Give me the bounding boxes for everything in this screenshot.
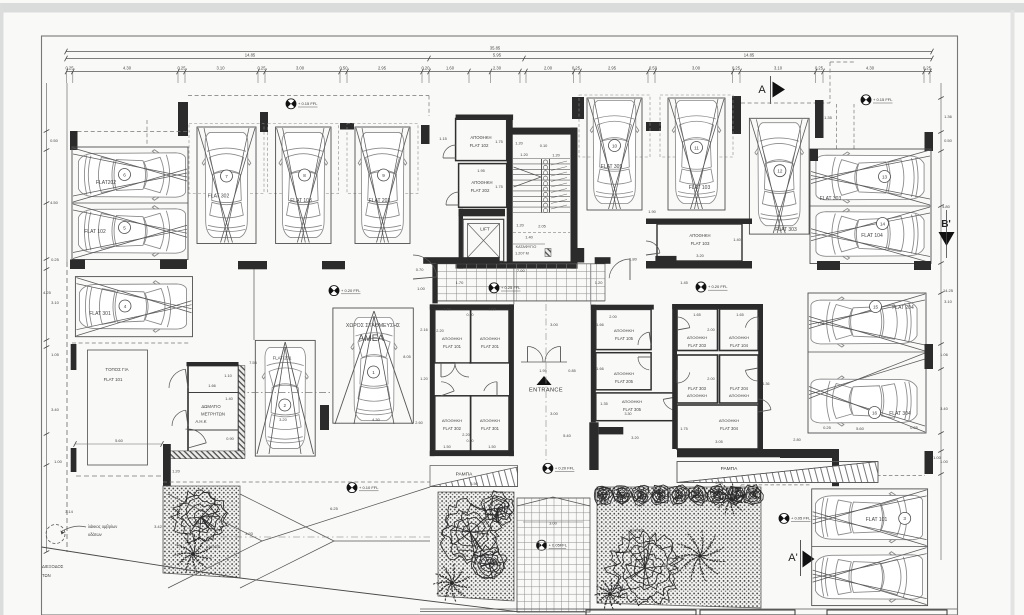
svg-text:ΑΠOΘΗΚΗ: ΑΠOΘΗΚΗ (442, 336, 462, 341)
svg-text:0.25: 0.25 (823, 425, 832, 430)
svg-text:14.85: 14.85 (744, 53, 755, 58)
svg-text:ΑΜΕΑ: ΑΜΕΑ (358, 333, 384, 343)
svg-text:1.36: 1.36 (763, 382, 770, 386)
svg-text:ΔΙΕΞOΔOΣ: ΔΙΕΞOΔOΣ (42, 564, 64, 569)
svg-text:14.25: 14.25 (943, 288, 954, 293)
svg-text:1.20: 1.20 (520, 152, 528, 157)
svg-text:ΑΠOΘΗΚΗ: ΑΠOΘΗΚΗ (442, 418, 462, 423)
svg-text:2.80: 2.80 (793, 438, 800, 442)
svg-text:ΡΑΜΠΑ: ΡΑΜΠΑ (721, 466, 739, 472)
svg-text:ΑΠOΘΗΚΗ: ΑΠOΘΗΚΗ (480, 336, 500, 341)
svg-text:0.50: 0.50 (340, 65, 349, 70)
svg-text:0.25: 0.25 (732, 65, 741, 70)
svg-text:ΑΠOΘΗΚΗ: ΑΠOΘΗΚΗ (614, 371, 634, 376)
svg-text:FLAT 303: FLAT 303 (820, 196, 842, 202)
svg-text:1.00: 1.00 (54, 459, 63, 464)
svg-text:1.60: 1.60 (446, 65, 455, 70)
svg-text:FLAT 305: FLAT 305 (601, 164, 623, 170)
svg-text:2.00: 2.00 (544, 65, 553, 70)
svg-text:2: 2 (284, 403, 287, 408)
svg-text:1.20: 1.20 (172, 469, 181, 474)
svg-text:ΑΠOΘΗΚΗ: ΑΠOΘΗΚΗ (614, 328, 634, 333)
svg-text:12: 12 (777, 169, 783, 174)
svg-text:0.25: 0.25 (815, 65, 824, 70)
svg-text:1.40: 1.40 (733, 237, 741, 242)
svg-text:1.40: 1.40 (525, 235, 533, 240)
svg-text:Α.Η.Κ: Α.Η.Κ (195, 419, 206, 424)
svg-text:ΑΠOΘΗΚΗ: ΑΠOΘΗΚΗ (729, 393, 749, 398)
svg-text:1.66: 1.66 (596, 367, 603, 371)
svg-text:1.36: 1.36 (944, 114, 953, 119)
svg-text:LIFT: LIFT (480, 227, 490, 232)
svg-text:+ 0.10 FFL: + 0.10 FFL (359, 485, 379, 490)
svg-text:ΑΠOΘΗΚΗ: ΑΠOΘΗΚΗ (471, 180, 492, 185)
svg-text:0.25: 0.25 (910, 425, 919, 430)
svg-text:ΑΠOΘΗΚΗ: ΑΠOΘΗΚΗ (719, 418, 739, 423)
svg-text:5.60: 5.60 (115, 438, 124, 443)
svg-text:2.05: 2.05 (538, 224, 546, 229)
svg-text:ΚΗΠOΣ: ΚΗΠOΣ (630, 528, 645, 533)
svg-text:ΑΠOΘΗΚΗ: ΑΠOΘΗΚΗ (480, 418, 500, 423)
svg-text:FLAT 101: FLAT 101 (866, 517, 888, 523)
svg-text:1.15: 1.15 (439, 136, 447, 141)
svg-text:2.95: 2.95 (608, 65, 617, 70)
svg-text:6: 6 (123, 172, 126, 177)
svg-text:1.35: 1.35 (600, 402, 607, 406)
svg-text:+ 0.25 FFL: + 0.25 FFL (501, 285, 521, 290)
svg-text:4.30: 4.30 (372, 417, 381, 422)
svg-text:υδάτων: υδάτων (88, 532, 102, 537)
svg-text:FLAT 304: FLAT 304 (889, 411, 911, 417)
svg-text:13: 13 (882, 174, 888, 179)
svg-text:14.85: 14.85 (245, 53, 256, 58)
svg-text:2.16: 2.16 (420, 328, 427, 332)
svg-text:FLAT 203: FLAT 203 (688, 343, 707, 348)
svg-text:7.55: 7.55 (817, 321, 826, 326)
svg-text:1.00: 1.00 (940, 459, 949, 464)
svg-text:+ 0.15 FFL: + 0.15 FFL (298, 101, 318, 106)
svg-text:1.95: 1.95 (539, 369, 546, 373)
svg-text:1.50: 1.50 (488, 307, 495, 311)
svg-text:4.50: 4.50 (50, 200, 59, 205)
svg-text:1.35: 1.35 (824, 115, 833, 120)
svg-text:λάκκος ομβρίων: λάκκος ομβρίων (88, 524, 117, 529)
svg-text:1.95: 1.95 (477, 168, 485, 173)
svg-text:3.10: 3.10 (51, 300, 60, 305)
svg-text:FLAT 202: FLAT 202 (471, 188, 490, 193)
svg-text:FLAT 203: FLAT 203 (369, 198, 391, 204)
svg-text:FLAT 304: FLAT 304 (720, 426, 739, 431)
svg-text:0.25: 0.25 (51, 257, 60, 262)
svg-text:FLAT 302: FLAT 302 (208, 194, 230, 200)
svg-text:1.10: 1.10 (224, 373, 232, 378)
svg-text:3.10: 3.10 (944, 299, 953, 304)
svg-text:3.42: 3.42 (154, 524, 163, 529)
svg-text:FLAT 103: FLAT 103 (691, 241, 710, 246)
svg-text:10: 10 (612, 143, 618, 148)
svg-text:7: 7 (225, 174, 228, 179)
svg-text:B': B' (941, 219, 951, 230)
svg-text:5.95: 5.95 (493, 53, 502, 58)
svg-text:1.207 M: 1.207 M (515, 252, 529, 256)
svg-text:FLAT 302: FLAT 302 (443, 426, 462, 431)
svg-text:2.20: 2.20 (436, 329, 443, 333)
svg-text:0.90: 0.90 (226, 436, 234, 441)
svg-text:+ 0.20 FFL: + 0.20 FFL (555, 466, 575, 471)
svg-text:FLAT 104: FLAT 104 (730, 343, 749, 348)
svg-text:1.60: 1.60 (443, 307, 450, 311)
svg-text:ΑΠOΘΗΚΗ: ΑΠOΘΗΚΗ (687, 393, 707, 398)
svg-text:0.20: 0.20 (422, 65, 431, 70)
svg-text:5.40: 5.40 (563, 433, 572, 438)
svg-text:7.55: 7.55 (249, 360, 258, 365)
svg-text:2.60: 2.60 (415, 421, 422, 425)
svg-text:4.30: 4.30 (123, 65, 132, 70)
svg-text:3.00: 3.00 (549, 521, 558, 526)
svg-text:1.06: 1.06 (940, 352, 949, 357)
svg-text:0.50: 0.50 (649, 65, 658, 70)
svg-text:2.20: 2.20 (462, 433, 469, 437)
svg-text:4.25: 4.25 (43, 290, 52, 295)
svg-text:A: A (758, 84, 766, 96)
svg-text:0.10: 0.10 (467, 439, 474, 443)
svg-text:ΑΠOΘΗΚΗ: ΑΠOΘΗΚΗ (470, 135, 491, 140)
svg-text:4.80: 4.80 (942, 204, 951, 209)
svg-text:1.50: 1.50 (443, 445, 450, 449)
svg-text:ΚΗΠOΣ: ΚΗΠOΣ (206, 544, 221, 549)
svg-text:FLAT 103: FLAT 103 (689, 185, 711, 191)
svg-text:0.25: 0.25 (572, 65, 581, 70)
svg-text:1.66: 1.66 (208, 383, 216, 388)
svg-text:1.75: 1.75 (495, 184, 503, 189)
svg-text:16: 16 (872, 410, 878, 415)
svg-text:+ 0.20 FFL: + 0.20 FFL (341, 288, 361, 293)
svg-text:4.30: 4.30 (866, 65, 875, 70)
svg-text:ΑΠOΘΗΚΗ: ΑΠOΘΗΚΗ (689, 233, 710, 238)
svg-text:A': A' (788, 552, 797, 564)
svg-text:FLAT 101: FLAT 101 (443, 344, 462, 349)
svg-text:1.40: 1.40 (225, 396, 233, 401)
svg-text:ΑΠOΘΗΚΗ: ΑΠOΘΗΚΗ (729, 335, 749, 340)
svg-text:3.00: 3.00 (550, 411, 559, 416)
svg-text:FLAT 101: FLAT 101 (104, 377, 123, 382)
svg-text:ΧΩΡOΣ ΣΤΑΘΜΕΥΣΗΣ: ΧΩΡOΣ ΣΤΑΘΜΕΥΣΗΣ (346, 323, 400, 329)
svg-text:0.85: 0.85 (568, 369, 575, 373)
svg-text:0.25: 0.25 (178, 65, 187, 70)
svg-text:1.20: 1.20 (515, 141, 523, 146)
svg-text:1.65: 1.65 (693, 313, 700, 317)
svg-text:15: 15 (873, 304, 879, 309)
svg-text:1: 1 (372, 370, 375, 375)
svg-text:1.50: 1.50 (488, 445, 495, 449)
svg-text:8.05: 8.05 (403, 355, 410, 359)
svg-text:FLAT 201: FLAT 201 (481, 344, 500, 349)
svg-text:2.00: 2.00 (609, 315, 616, 319)
svg-text:1.45: 1.45 (680, 280, 688, 285)
svg-text:ΡΑΜΠΑ: ΡΑΜΠΑ (456, 472, 474, 478)
svg-text:FLAT 303: FLAT 303 (775, 227, 797, 233)
svg-text:FLAT 103: FLAT 103 (290, 198, 312, 204)
svg-text:2.00: 2.00 (707, 328, 714, 332)
svg-text:0.70: 0.70 (416, 267, 425, 272)
svg-text:ΚΑΤΑΦΥΓΙO: ΚΑΤΑΦΥΓΙO (516, 245, 537, 249)
svg-text:FLAT202: FLAT202 (96, 180, 116, 186)
svg-text:ΑΠOΘΗΚΗ: ΑΠOΘΗΚΗ (687, 335, 707, 340)
svg-text:1.65: 1.65 (736, 313, 743, 317)
svg-text:+ 0.20 FFL: + 0.20 FFL (708, 284, 728, 289)
svg-text:3.20: 3.20 (279, 417, 288, 422)
svg-text:3.40: 3.40 (51, 407, 60, 412)
svg-text:1.00: 1.00 (417, 286, 426, 291)
svg-text:3.20: 3.20 (696, 253, 704, 258)
svg-text:FLAT 102: FLAT 102 (84, 229, 106, 235)
svg-text:0.50: 0.50 (944, 138, 953, 143)
svg-text:7.00: 7.00 (517, 268, 526, 273)
svg-text:FLAT 204: FLAT 204 (730, 386, 749, 391)
svg-text:3.50: 3.50 (470, 481, 478, 486)
svg-text:+ 0.05 FFL: + 0.05 FFL (791, 516, 811, 521)
svg-text:FLAT 301: FLAT 301 (89, 311, 111, 317)
svg-text:FLAT 301: FLAT 301 (481, 426, 500, 431)
svg-text:0.25: 0.25 (66, 65, 75, 70)
svg-text:4: 4 (124, 304, 127, 309)
svg-text:1.75: 1.75 (495, 139, 503, 144)
svg-text:0.25: 0.25 (923, 65, 932, 70)
svg-text:1.75: 1.75 (680, 427, 687, 431)
svg-text:5.60: 5.60 (856, 426, 865, 431)
svg-text:3.14: 3.14 (65, 509, 74, 514)
svg-text:3: 3 (903, 516, 906, 521)
svg-text:ΤOΠOΣ ΓΙΑ: ΤOΠOΣ ΓΙΑ (105, 367, 128, 372)
svg-text:6.25: 6.25 (330, 506, 339, 511)
svg-text:3.00: 3.00 (296, 65, 305, 70)
svg-text:3.10: 3.10 (217, 65, 226, 70)
svg-text:2.30: 2.30 (493, 65, 502, 70)
svg-text:0.10: 0.10 (467, 313, 474, 317)
svg-text:1.05: 1.05 (51, 352, 60, 357)
svg-text:1.20: 1.20 (420, 377, 427, 381)
svg-text:ΚΗΠOΣ: ΚΗΠOΣ (455, 553, 470, 558)
svg-text:FLAT 201: FLAT 201 (273, 356, 292, 361)
svg-text:ΔΩΜΑΤΙO: ΔΩΜΑΤΙO (201, 404, 221, 409)
svg-text:3.05: 3.05 (715, 440, 722, 444)
svg-text:+ 0.05FFL: + 0.05FFL (549, 542, 568, 547)
svg-text:0.25: 0.25 (258, 65, 267, 70)
svg-text:11: 11 (694, 145, 699, 150)
svg-text:ΤΩΝ: ΤΩΝ (42, 573, 51, 578)
svg-text:1.20: 1.20 (595, 280, 604, 285)
svg-text:FLAT 102: FLAT 102 (470, 143, 489, 148)
svg-text:1.66: 1.66 (596, 323, 603, 327)
svg-text:1.90: 1.90 (648, 209, 656, 214)
svg-text:FLAT 303: FLAT 303 (688, 386, 707, 391)
svg-text:1.80: 1.80 (629, 257, 638, 262)
svg-text:9: 9 (382, 173, 385, 178)
svg-text:5: 5 (123, 225, 126, 230)
svg-text:2.00: 2.00 (707, 377, 714, 381)
svg-text:3.00: 3.00 (692, 65, 701, 70)
svg-text:2.95: 2.95 (378, 65, 387, 70)
svg-text:3.30: 3.30 (625, 412, 632, 416)
svg-text:0.10: 0.10 (540, 143, 548, 148)
svg-text:ΜΕΤΡΗΤΩΝ: ΜΕΤΡΗΤΩΝ (201, 412, 225, 417)
svg-text:14: 14 (880, 221, 886, 226)
svg-text:35.85: 35.85 (490, 46, 501, 51)
svg-text:1.20: 1.20 (552, 153, 560, 158)
svg-text:1.70: 1.70 (456, 280, 465, 285)
svg-text:FLAT 104: FLAT 104 (861, 233, 883, 239)
svg-text:8: 8 (303, 173, 306, 178)
svg-text:FLAT 204: FLAT 204 (892, 305, 914, 311)
svg-text:3.00: 3.00 (550, 322, 559, 327)
svg-text:0.50: 0.50 (50, 138, 59, 143)
svg-text:FLAT 205: FLAT 205 (615, 379, 634, 384)
svg-text:1.00: 1.00 (933, 455, 942, 460)
svg-text:3.40: 3.40 (940, 406, 949, 411)
svg-text:ΑΠOΘΗΚΗ: ΑΠOΘΗΚΗ (622, 399, 642, 404)
svg-text:FLAT 105: FLAT 105 (615, 336, 634, 341)
svg-text:3.10: 3.10 (774, 65, 783, 70)
svg-text:3.20: 3.20 (631, 436, 638, 440)
svg-text:1.20: 1.20 (516, 223, 524, 228)
svg-text:+ 0.15 FFL: + 0.15 FFL (873, 97, 893, 102)
